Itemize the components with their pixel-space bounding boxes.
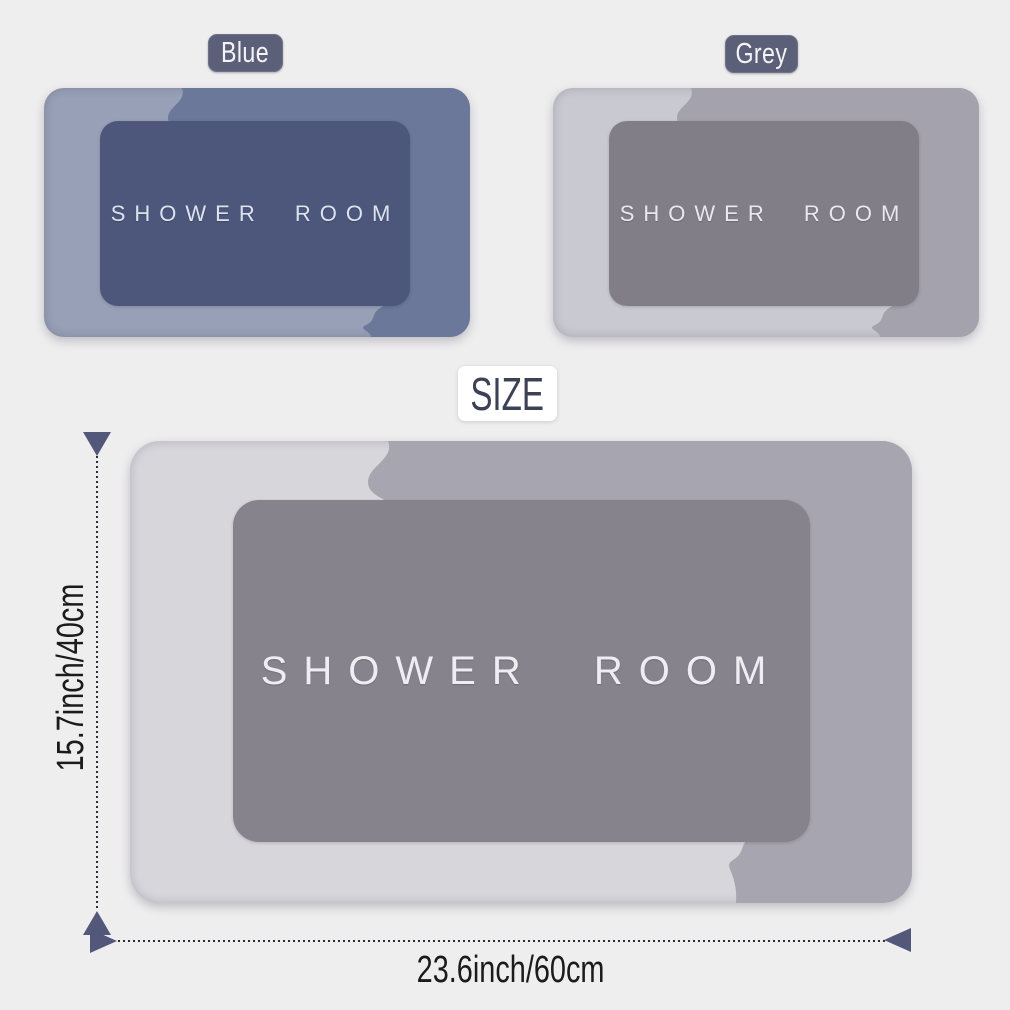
large-mat-inner-panel: SHOWER ROOM [233, 500, 810, 842]
dimension-arrow-right-icon [884, 928, 911, 952]
size-badge-label: SIZE [471, 367, 545, 421]
blue-mat-preview: SHOWER ROOM [44, 88, 470, 337]
variant-tag-grey-label: Grey [736, 38, 788, 71]
width-dimension-label: 23.6inch/60cm [417, 949, 605, 992]
dimension-arrow-left-icon [90, 929, 117, 953]
grey-mat-preview: SHOWER ROOM [553, 88, 979, 337]
height-dimension-label: 15.7inch/40cm [51, 583, 94, 771]
grey-mat-inner-panel: SHOWER ROOM [609, 121, 919, 306]
blue-mat-shower-room-text: SHOWER ROOM [111, 201, 400, 227]
large-mat-shower-room-text: SHOWER ROOM [261, 649, 783, 694]
height-dimension-label-wrap: 15.7inch/40cm [42, 555, 102, 799]
large-mat-diagram: SHOWER ROOM [130, 441, 912, 903]
product-infographic: Blue Grey SHOWER ROOM SHOWER ROOM SIZE S… [0, 0, 1010, 1010]
variant-tag-blue: Blue [208, 34, 283, 72]
variant-tag-blue-label: Blue [221, 37, 269, 70]
horizontal-dimension-line [118, 940, 912, 942]
size-badge: SIZE [458, 366, 557, 421]
blue-mat-inner-panel: SHOWER ROOM [100, 121, 410, 306]
dimension-arrow-top-icon [83, 432, 111, 456]
width-dimension-label-wrap: 23.6inch/60cm [361, 946, 661, 994]
variant-tag-grey: Grey [725, 35, 798, 73]
grey-mat-shower-room-text: SHOWER ROOM [620, 201, 909, 227]
